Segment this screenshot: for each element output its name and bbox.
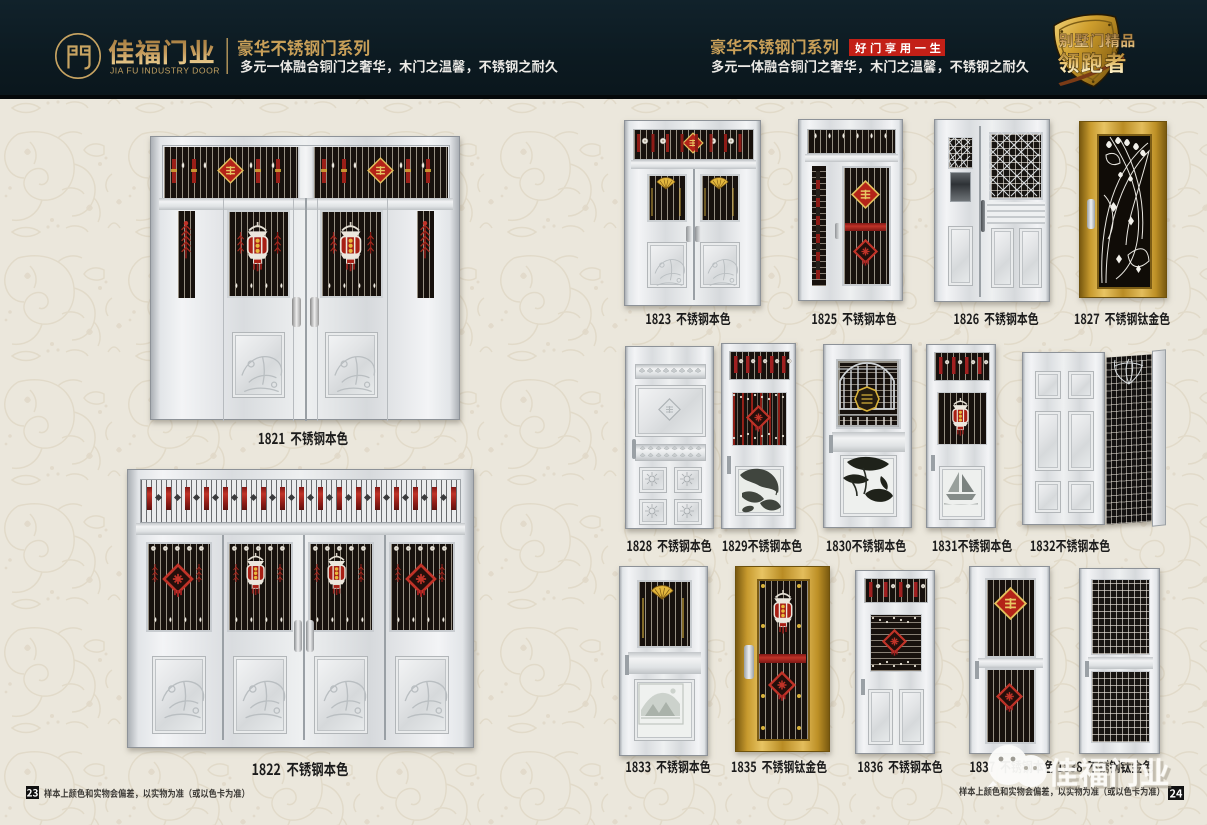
- svg-text:JIA FU INDUSTRY DOOR: JIA FU INDUSTRY DOOR: [110, 66, 220, 76]
